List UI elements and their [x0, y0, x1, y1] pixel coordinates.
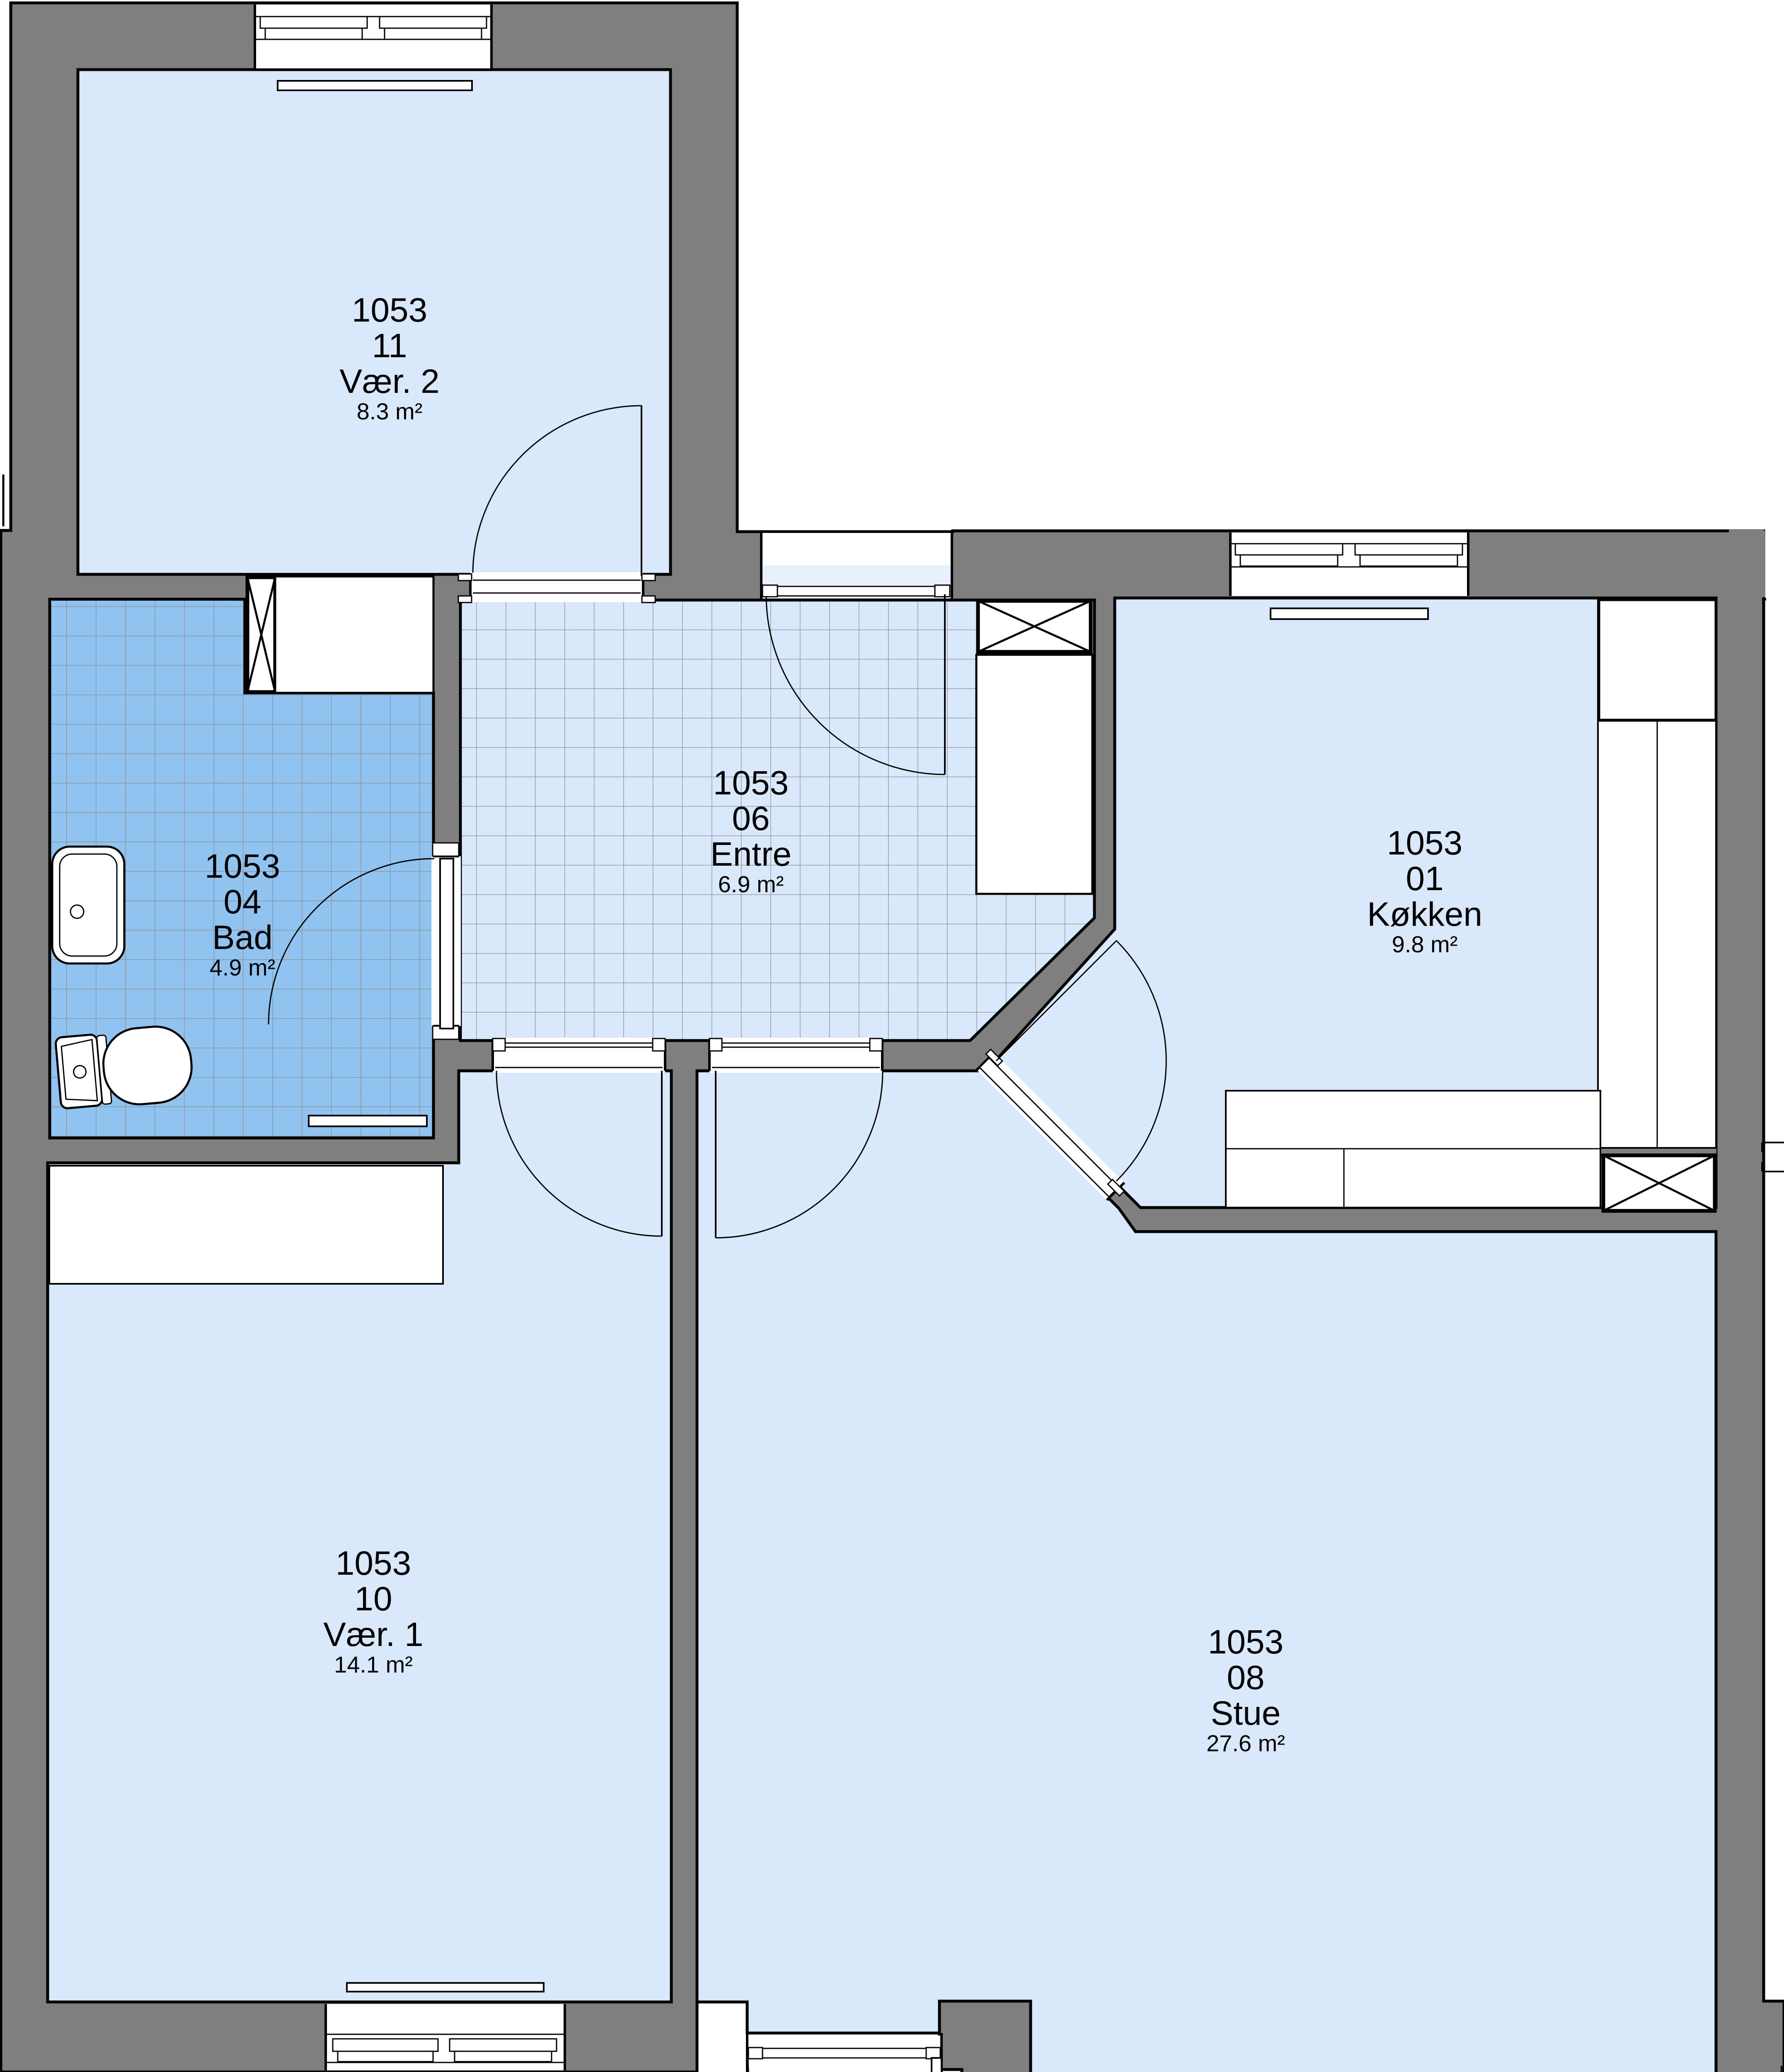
- svg-text:Vær. 2: Vær. 2: [339, 363, 440, 400]
- svg-text:4.9 m²: 4.9 m²: [210, 954, 276, 980]
- svg-text:11: 11: [372, 327, 407, 365]
- svg-text:1053: 1053: [336, 1544, 411, 1582]
- svg-text:14.1 m²: 14.1 m²: [334, 1651, 413, 1677]
- svg-text:Bad: Bad: [212, 919, 273, 956]
- svg-text:08: 08: [1227, 1659, 1264, 1697]
- svg-text:10: 10: [354, 1580, 392, 1618]
- svg-text:Entre: Entre: [710, 835, 792, 873]
- svg-text:9.8 m²: 9.8 m²: [1392, 931, 1458, 957]
- svg-text:Stue: Stue: [1211, 1694, 1281, 1732]
- svg-text:06: 06: [732, 800, 770, 838]
- svg-text:1053: 1053: [205, 847, 280, 885]
- svg-text:1053: 1053: [713, 764, 789, 802]
- svg-text:1053: 1053: [352, 291, 427, 329]
- svg-text:27.6 m²: 27.6 m²: [1206, 1730, 1285, 1756]
- svg-text:Vær. 1: Vær. 1: [323, 1616, 424, 1653]
- svg-text:04: 04: [223, 883, 261, 921]
- svg-text:1053: 1053: [1387, 824, 1462, 862]
- svg-text:6.9 m²: 6.9 m²: [718, 871, 784, 897]
- svg-text:8.3 m²: 8.3 m²: [357, 398, 423, 424]
- svg-text:Køkken: Køkken: [1367, 896, 1482, 933]
- svg-text:01: 01: [1406, 860, 1443, 898]
- svg-text:1053: 1053: [1208, 1623, 1283, 1661]
